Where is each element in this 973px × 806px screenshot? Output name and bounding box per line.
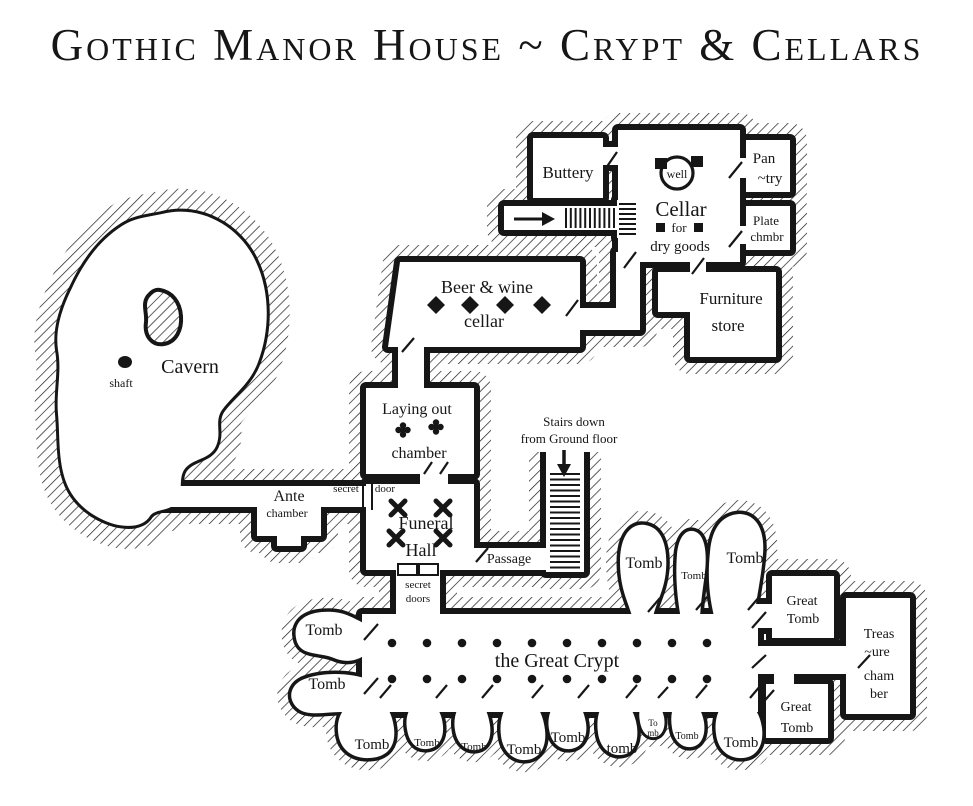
- label-secret-door-1: secret: [333, 483, 359, 495]
- crypt-pillar: [528, 639, 537, 648]
- crypt-pillar: [528, 675, 537, 684]
- laying-pillar: [400, 422, 406, 428]
- crypt-pillar: [703, 639, 712, 648]
- map-canvas: Gothic Manor House ~ Crypt & Cellars But…: [0, 0, 973, 806]
- crypt-pillar: [633, 675, 642, 684]
- label-treasure-1: Treas: [864, 627, 895, 642]
- label-beer-2: cellar: [464, 311, 504, 331]
- label-cavern: Cavern: [161, 356, 219, 378]
- label-pantry-1: Pan: [753, 151, 776, 167]
- label-tomb-b7a: To: [648, 718, 658, 728]
- label-tomb-b3: Tomb: [461, 741, 487, 753]
- link-great-tomb-lower: [774, 668, 794, 690]
- label-tomb-b6: tomb: [607, 741, 638, 757]
- label-secret-door-2: door: [375, 483, 396, 495]
- well-post-left: [655, 158, 667, 169]
- label-tomb-up-3: Tomb: [726, 550, 763, 567]
- ante-niche: [277, 534, 301, 546]
- label-laying-1: Laying out: [382, 401, 452, 418]
- label-secret-doors-1: secret: [405, 579, 431, 591]
- crypt-pillar: [388, 675, 397, 684]
- cavern-rock-island: [145, 290, 181, 345]
- map-title: Gothic Manor House ~ Crypt & Cellars: [51, 20, 924, 70]
- crypt-pillar: [458, 675, 467, 684]
- label-cellar: Cellar: [655, 197, 706, 221]
- label-stairs-1: Stairs down: [543, 414, 605, 429]
- label-great-tomb-upper-1: Great: [786, 594, 817, 609]
- crypt-pillar: [563, 675, 572, 684]
- label-tomb-b8: Tomb: [675, 731, 698, 742]
- label-cellar-goods: dry goods: [650, 239, 710, 255]
- shaft-hole: [118, 356, 132, 368]
- label-pantry-2: ~try: [758, 171, 783, 187]
- label-furniture-1: Furniture: [699, 289, 762, 308]
- crypt-pillar: [668, 675, 677, 684]
- label-tomb-b7b: mb: [647, 728, 659, 738]
- label-treasure-2: ~ure: [864, 645, 889, 660]
- laying-pillar: [400, 431, 406, 437]
- corridor-beer-laying: [398, 340, 424, 394]
- label-laying-2: chamber: [391, 445, 447, 462]
- label-well: well: [667, 167, 688, 181]
- secret-doors-leaf: [419, 564, 438, 575]
- label-ante-2: chamber: [266, 506, 307, 520]
- label-great-tomb-lower-2: Tomb: [781, 721, 813, 736]
- crypt-pillar: [493, 675, 502, 684]
- link-pantry: [732, 158, 752, 178]
- label-secret-doors-2: doors: [406, 593, 430, 605]
- label-great-tomb-lower-1: Great: [780, 700, 811, 715]
- well-post-right: [691, 156, 703, 167]
- crypt-pillar: [423, 639, 432, 648]
- cellar-pillar-left: [656, 223, 665, 232]
- label-plate-1: Plate: [753, 213, 779, 228]
- label-stairs-2: from Ground floor: [521, 431, 618, 446]
- secret-doors-leaf: [398, 564, 417, 575]
- tomb-up-3: [709, 514, 763, 624]
- crypt-pillar: [668, 639, 677, 648]
- cellar-pillar-right: [694, 223, 703, 232]
- label-tomb-up-2: Tomb: [681, 570, 707, 582]
- label-furniture-2: store: [711, 316, 744, 335]
- room-beer-cellar: [388, 262, 580, 347]
- label-treasure-4: ber: [870, 687, 888, 702]
- label-tomb-b1: Tomb: [355, 737, 390, 753]
- label-plate-2: chmbr: [750, 229, 784, 244]
- label-beer-1: Beer & wine: [441, 277, 533, 297]
- crypt-pillar: [563, 639, 572, 648]
- crypt-pillar: [423, 675, 432, 684]
- label-treasure-3: cham: [864, 669, 894, 684]
- crypt-pillar: [598, 639, 607, 648]
- label-tomb-b5: Tomb: [551, 730, 586, 746]
- label-great-crypt: the Great Crypt: [495, 650, 620, 672]
- label-tomb-b2: Tomb: [414, 737, 440, 749]
- crypt-pillar: [598, 675, 607, 684]
- label-funeral-2: Hall: [406, 540, 437, 560]
- label-tomb-left-1: Tomb: [305, 622, 342, 639]
- corridor-treasure: [750, 646, 854, 674]
- link-furniture-store: [690, 258, 706, 278]
- crypt-pillar: [633, 639, 642, 648]
- label-ante-1: Ante: [273, 488, 304, 505]
- label-tomb-up-1: Tomb: [625, 555, 662, 572]
- label-shaft: shaft: [109, 376, 133, 390]
- label-funeral-1: Funeral: [399, 513, 454, 533]
- crypt-pillar: [703, 675, 712, 684]
- label-tomb-left-2: Tomb: [308, 676, 345, 693]
- label-tomb-b9: Tomb: [724, 735, 759, 751]
- map-page: Gothic Manor House ~ Crypt & Cellars But…: [0, 0, 973, 806]
- label-buttery: Buttery: [543, 163, 594, 182]
- label-cellar-for: for: [671, 220, 687, 235]
- laying-pillar: [433, 428, 439, 434]
- label-passage: Passage: [487, 552, 531, 567]
- label-great-tomb-upper-2: Tomb: [787, 612, 819, 627]
- crypt-pillar: [493, 639, 502, 648]
- crypt-pillar: [388, 639, 397, 648]
- crypt-pillar: [458, 639, 467, 648]
- laying-pillar: [433, 419, 439, 425]
- label-tomb-b4: Tomb: [507, 742, 542, 758]
